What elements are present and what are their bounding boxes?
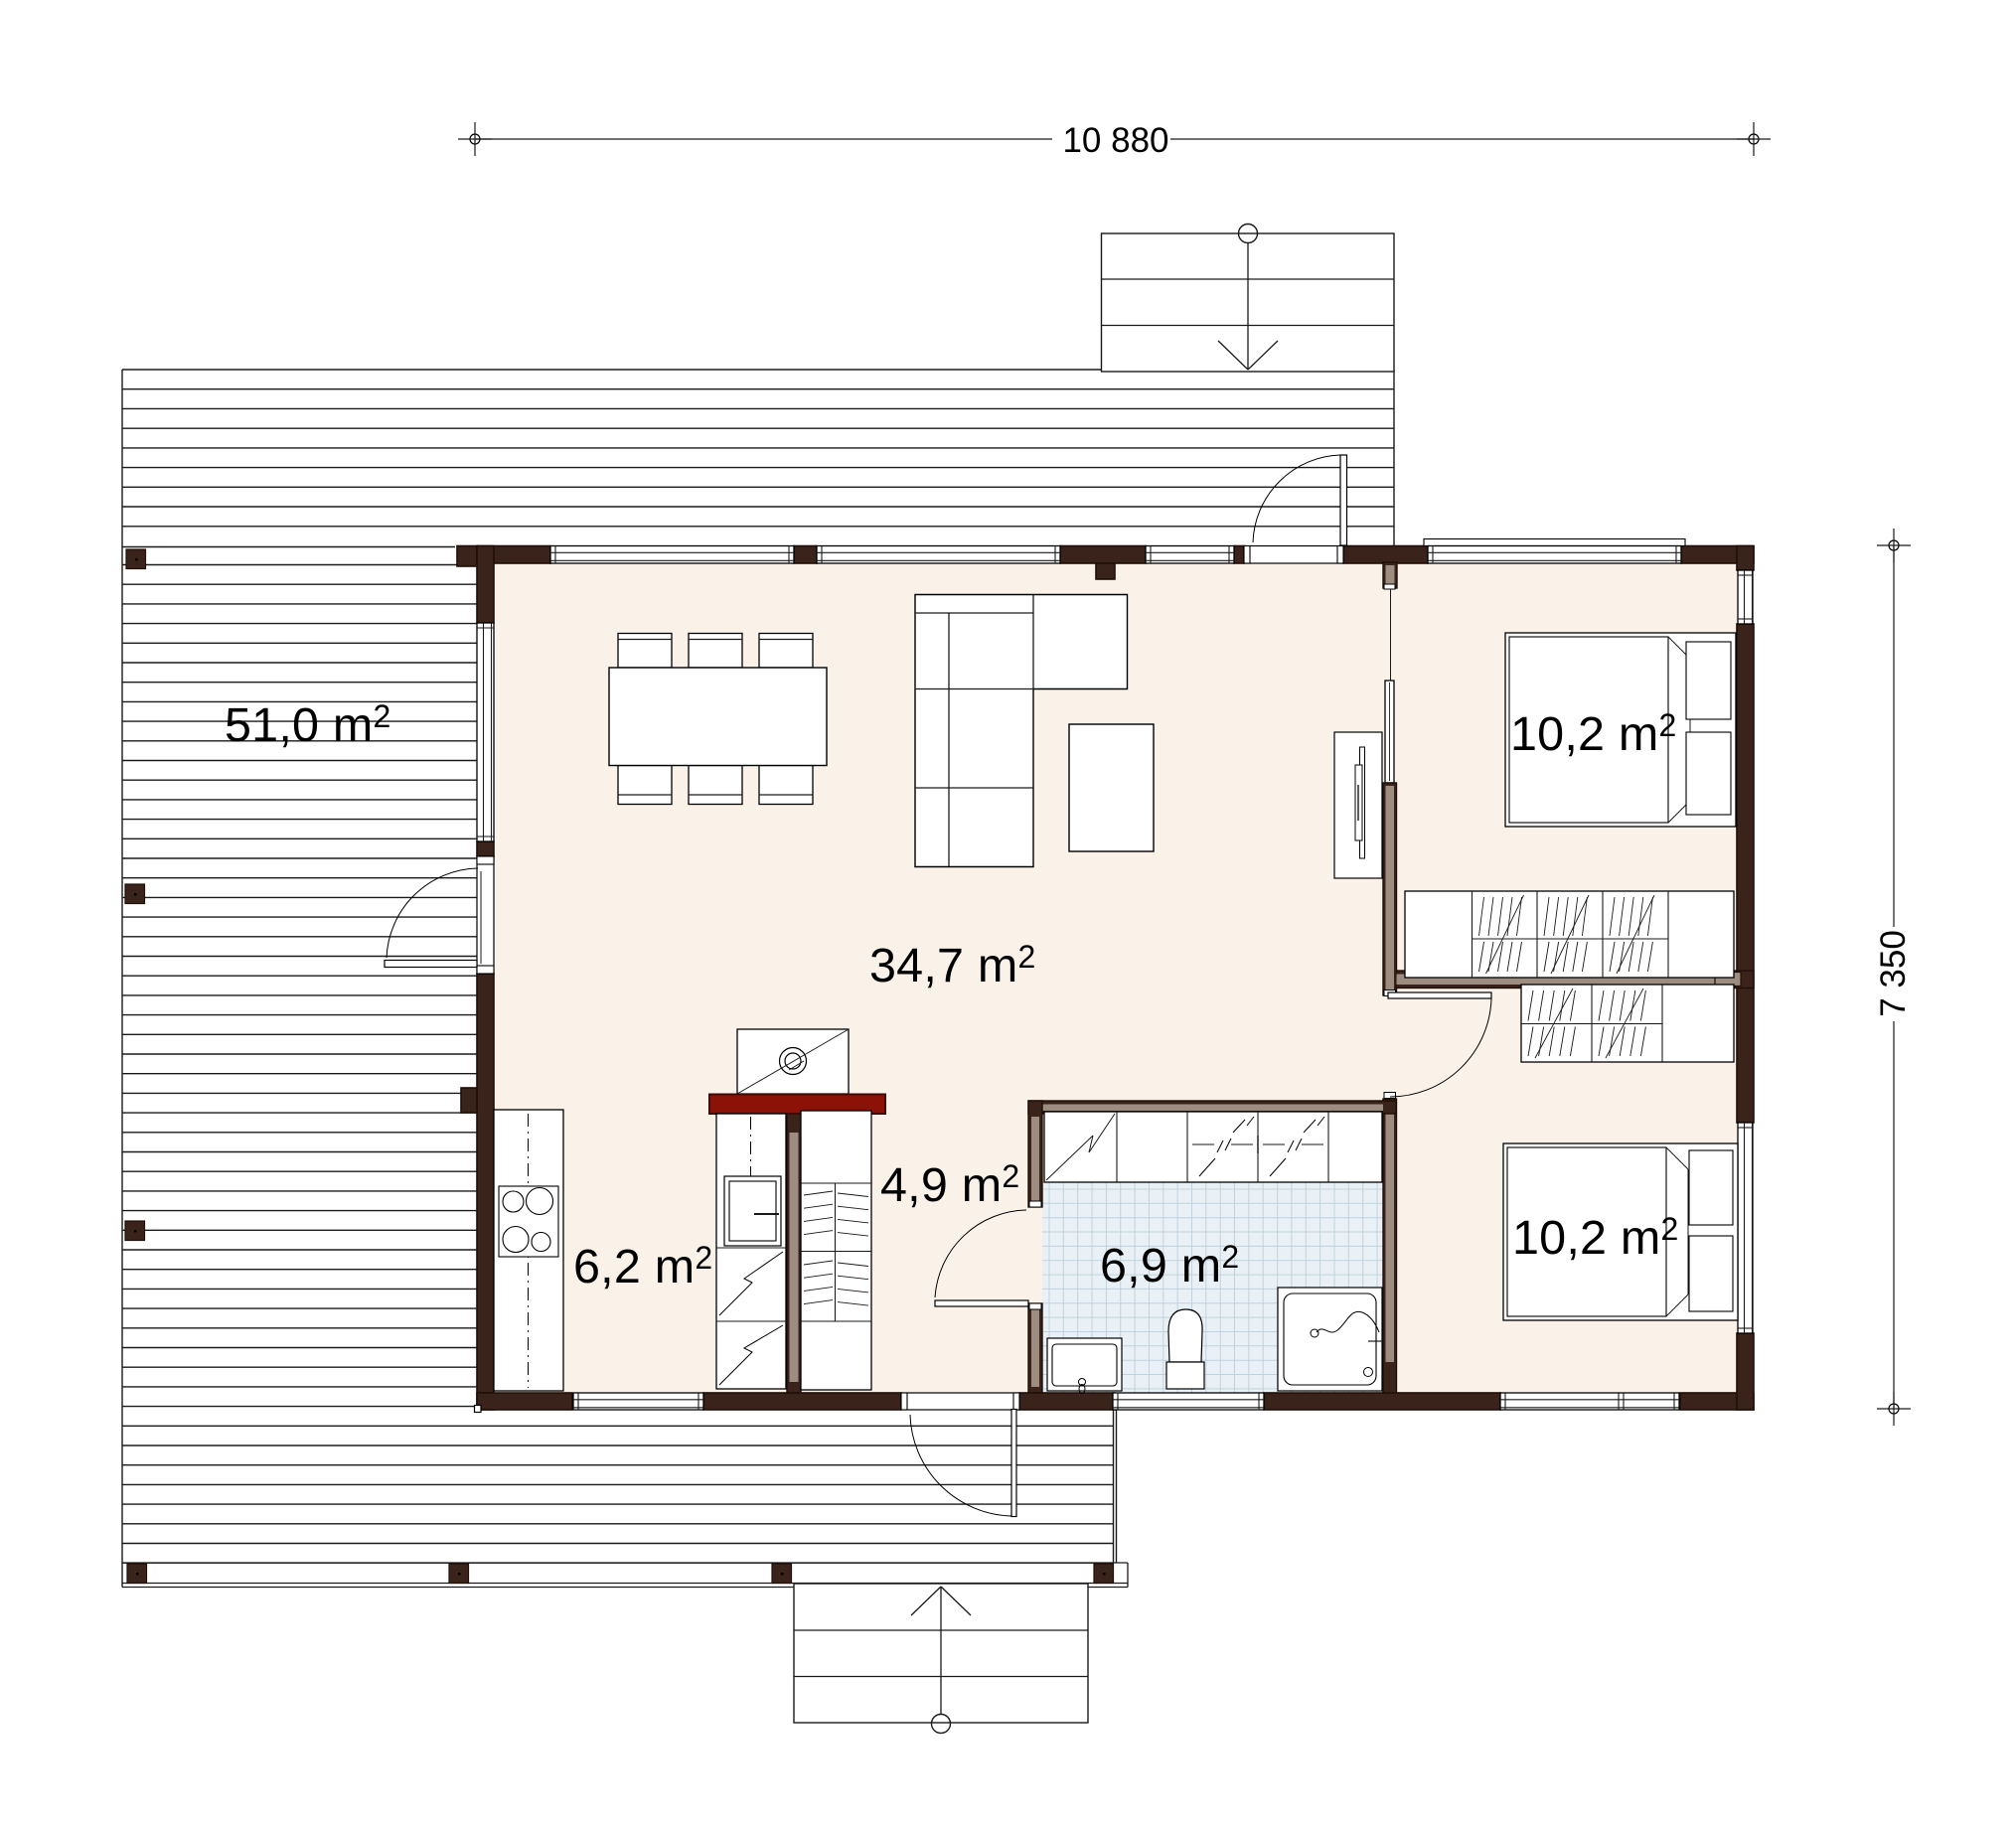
svg-text:6,2 m2: 6,2 m2 [573,1240,712,1293]
svg-text:10,2 m2: 10,2 m2 [1512,1211,1678,1265]
svg-text:51,0 m2: 51,0 m2 [225,698,390,752]
svg-text:10,2 m2: 10,2 m2 [1510,707,1676,761]
svg-text:34,7 m2: 34,7 m2 [869,939,1035,992]
svg-text:10 880: 10 880 [1062,121,1168,160]
svg-text:7 350: 7 350 [1874,930,1913,1017]
svg-text:6,9 m2: 6,9 m2 [1100,1239,1239,1293]
svg-text:4,9 m2: 4,9 m2 [880,1158,1019,1212]
